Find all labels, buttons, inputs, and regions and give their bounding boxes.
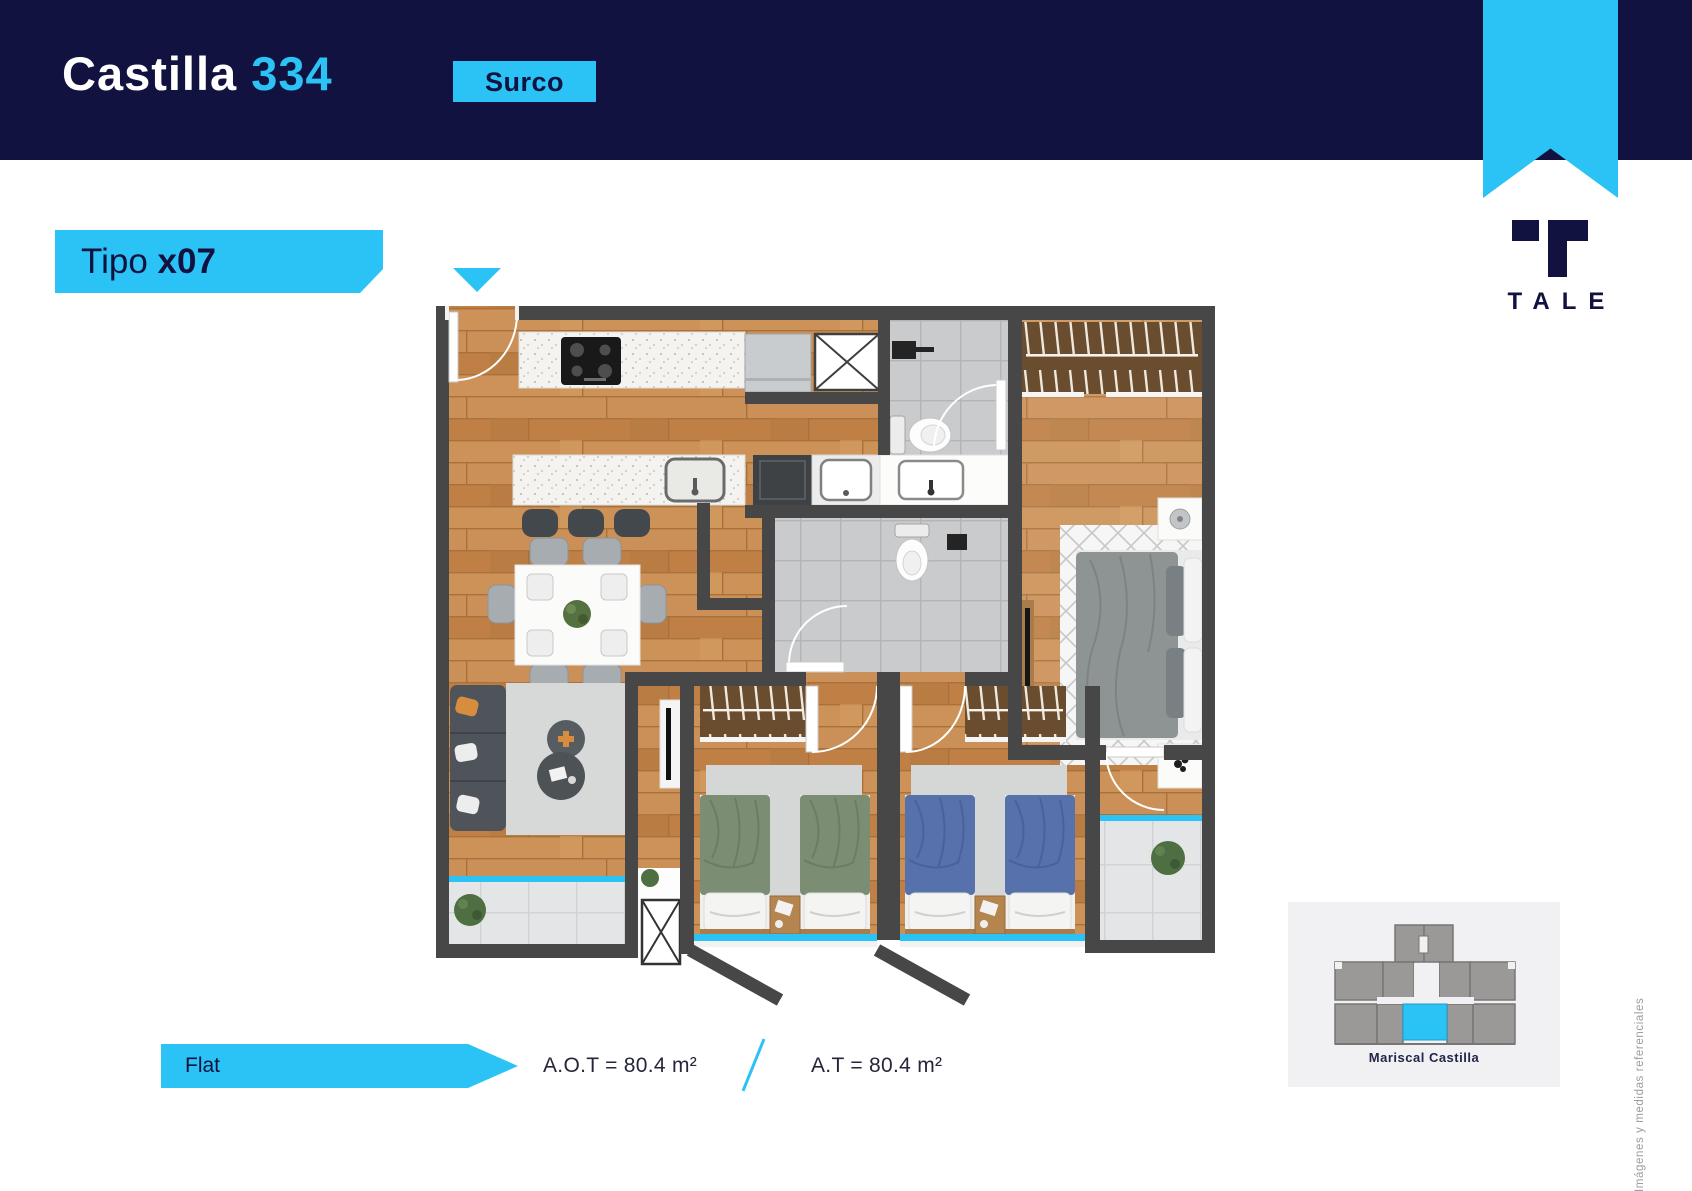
toilet: [895, 524, 929, 581]
pillow: [1166, 648, 1186, 718]
building-block: [1383, 962, 1414, 1000]
plant-icon: [1151, 841, 1185, 875]
single-bed-blue: [1005, 795, 1075, 937]
area-total-text: A.O.T = 80.4 m²: [543, 1044, 697, 1088]
nightstand: [975, 896, 1005, 934]
building-block: [1473, 1004, 1515, 1044]
window-glass-line: [449, 876, 625, 882]
bathroom-2-floor: [775, 518, 1008, 672]
shower-control-icon: [947, 534, 967, 550]
place-setting: [527, 630, 553, 656]
window-glass-line: [694, 934, 877, 941]
door-leaf: [786, 662, 844, 672]
disclaimer-text: Imágenes y medidas referenciales: [1634, 916, 1646, 1191]
key-plan-panel: Mariscal Castilla: [1288, 902, 1560, 1087]
island-sink: [666, 459, 724, 501]
closet: [700, 686, 806, 742]
pillow: [1166, 566, 1186, 636]
place-setting: [601, 630, 627, 656]
single-bed-green: [700, 795, 770, 937]
brand-wordmark: TALE: [1478, 288, 1636, 316]
pillow: [1184, 648, 1202, 732]
building-block: [1447, 1004, 1473, 1044]
angled-wall: [877, 950, 967, 1000]
plant-icon: [563, 600, 591, 628]
building-block: [1439, 962, 1470, 1000]
nightstand: [1158, 498, 1202, 540]
chair: [583, 538, 621, 566]
nightstand: [770, 896, 800, 934]
area-separator-slash: [742, 1038, 766, 1091]
stool: [568, 509, 604, 537]
duct-shaft: [642, 900, 680, 964]
terrace-tiles: [1100, 821, 1202, 940]
toilet: [890, 416, 951, 454]
header-bar: Castilla334 Surco: [0, 0, 1692, 160]
rug: [706, 765, 862, 797]
unit-type-code: x07: [158, 242, 216, 281]
door-leaf: [1106, 747, 1164, 757]
cooktop: [561, 337, 621, 385]
single-bed-blue: [905, 795, 975, 937]
wall-left: [436, 306, 449, 958]
unit-highlight: [1403, 1004, 1447, 1040]
flyer-page: Castilla334 Surco TALE Tipo x07: [0, 0, 1692, 1191]
window-sill: [900, 941, 1085, 947]
single-bed-green: [800, 795, 870, 937]
plan-type-banner: Flat: [161, 1044, 518, 1088]
unit-type-word: Tipo: [81, 242, 148, 281]
plant-icon: [641, 869, 659, 887]
district-badge: Surco: [453, 61, 596, 102]
rug: [911, 765, 1067, 797]
chair: [530, 538, 568, 566]
building-block: [1377, 1004, 1403, 1044]
wall-right: [1202, 306, 1215, 953]
closet: [1022, 322, 1202, 397]
window-glass-line: [900, 934, 1085, 941]
window-glass-line: [1100, 815, 1202, 821]
window-sill: [694, 941, 877, 947]
angled-wall: [690, 950, 780, 1000]
fridge: [745, 334, 811, 392]
building-block: [1335, 962, 1383, 1000]
wall-bottom-left: [436, 944, 630, 958]
rug: [975, 797, 1005, 899]
balcony-left: [449, 876, 625, 944]
pillow: [1184, 558, 1202, 642]
door-leaf: [900, 686, 912, 752]
project-number: 334: [251, 47, 332, 100]
door-leaf: [806, 686, 818, 752]
area-text: A.T = 80.4 m²: [811, 1044, 942, 1088]
wall-bottom-right: [1085, 940, 1215, 953]
logo-block-stem: [1548, 241, 1567, 277]
chair: [488, 585, 516, 623]
place-setting: [527, 574, 553, 600]
kitchen-cabinet-dark: [753, 455, 812, 505]
logo-block-left: [1512, 220, 1539, 241]
wall-top: [517, 306, 1215, 320]
tv-icon: [666, 708, 671, 780]
plant-icon: [454, 894, 486, 926]
page-title: Castilla334: [62, 46, 333, 101]
vanity-sink: [880, 455, 1008, 505]
elevator-core: [1419, 936, 1428, 953]
laundry-sink: [812, 455, 880, 505]
duct-shaft: [815, 334, 879, 390]
door-leaf: [996, 380, 1006, 450]
rug: [770, 797, 800, 899]
terrace-right: [1100, 815, 1202, 940]
kitchen-counter: [519, 332, 745, 388]
stool: [522, 509, 558, 537]
building-gap: [1414, 963, 1439, 999]
key-plan-caption: Mariscal Castilla: [1288, 1050, 1560, 1065]
building-block: [1335, 1004, 1377, 1044]
building-key-plan: [1288, 902, 1560, 1060]
stool: [614, 509, 650, 537]
door-leaf: [449, 312, 458, 382]
unit-type-label: Tipo x07: [55, 230, 383, 293]
chair: [638, 585, 666, 623]
place-setting: [601, 574, 627, 600]
project-name: Castilla: [62, 47, 237, 100]
bookmark-ribbon-icon: [1483, 0, 1618, 198]
floor-plan: [380, 260, 1250, 1010]
living-area: [450, 683, 626, 835]
tale-logo-icon: [1512, 220, 1592, 278]
logo-block-top: [1548, 220, 1588, 241]
